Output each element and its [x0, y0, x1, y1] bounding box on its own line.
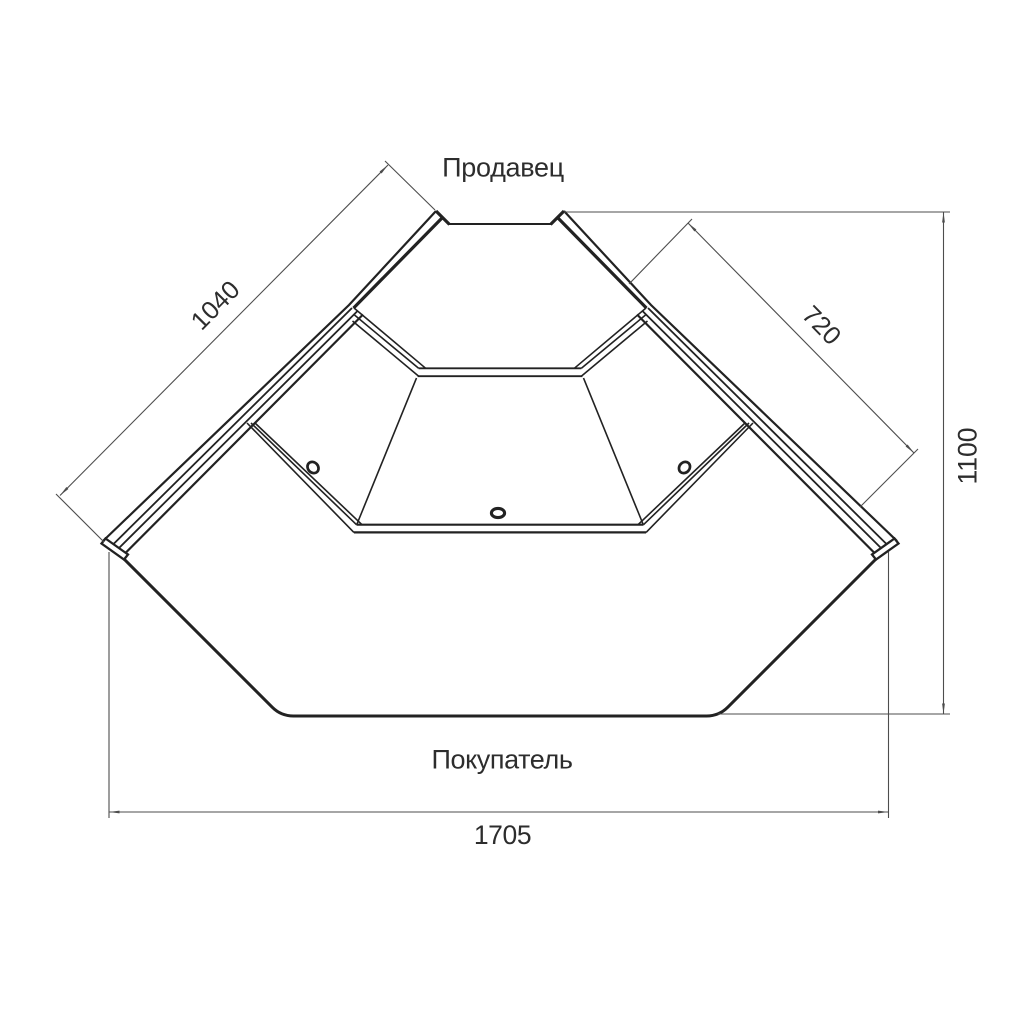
svg-text:1100: 1100: [953, 428, 983, 485]
svg-text:1705: 1705: [474, 820, 531, 850]
svg-text:Покупатель: Покупатель: [431, 745, 572, 775]
svg-text:Продавец: Продавец: [442, 153, 564, 183]
